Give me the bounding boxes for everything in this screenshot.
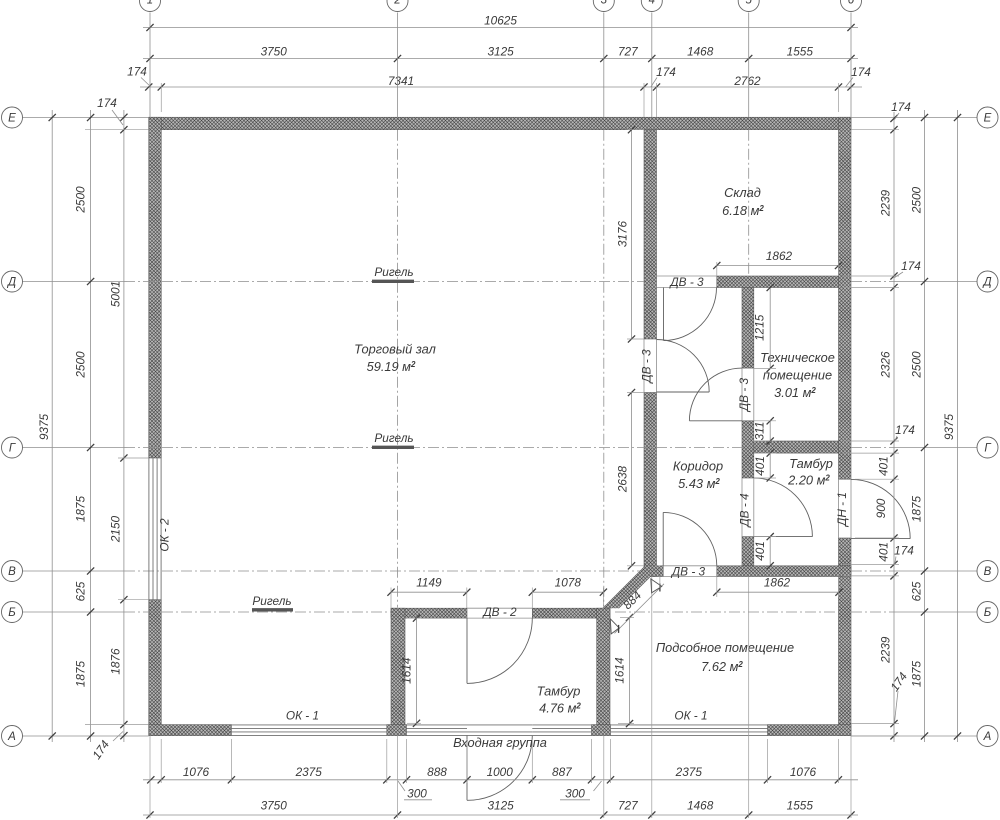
svg-text:В: В [984,566,992,578]
svg-text:1468: 1468 [687,44,714,58]
svg-text:401: 401 [877,456,891,476]
svg-text:ДН - 1: ДН - 1 [835,492,849,528]
svg-text:2500: 2500 [910,186,924,214]
svg-text:ДВ - 3: ДВ - 3 [670,565,706,579]
svg-text:1555: 1555 [787,44,814,58]
svg-text:ДВ - 2: ДВ - 2 [481,605,517,619]
svg-text:1: 1 [147,0,153,7]
svg-text:В: В [8,566,16,578]
svg-text:ОК - 1: ОК - 1 [674,709,707,723]
svg-text:174: 174 [851,65,871,79]
svg-text:3.01 м2: 3.01 м2 [774,385,816,400]
svg-text:900: 900 [874,498,888,518]
svg-text:3125: 3125 [487,799,514,813]
svg-text:ДВ - 3: ДВ - 3 [737,377,751,413]
svg-text:2375: 2375 [675,765,703,779]
svg-text:2762: 2762 [733,74,761,88]
svg-text:6: 6 [848,0,855,7]
svg-text:4: 4 [649,0,655,7]
svg-text:А: А [983,731,992,743]
svg-text:1076: 1076 [790,765,817,779]
svg-text:3750: 3750 [261,44,288,58]
svg-text:1555: 1555 [787,799,814,813]
svg-text:Торговый зал: Торговый зал [354,342,436,357]
svg-text:300: 300 [407,787,427,801]
svg-text:2239: 2239 [879,189,893,217]
svg-text:ДВ - 4: ДВ - 4 [738,493,752,529]
svg-text:10625: 10625 [484,13,517,27]
svg-text:1862: 1862 [764,576,791,590]
svg-text:2.20 м2: 2.20 м2 [787,473,830,488]
svg-text:3176: 3176 [616,220,630,247]
svg-text:174: 174 [656,65,676,79]
svg-text:2: 2 [393,0,401,7]
svg-text:Г: Г [984,443,991,455]
svg-text:Техническое: Техническое [760,350,835,365]
svg-text:Тамбур: Тамбур [789,456,833,471]
svg-text:1862: 1862 [766,249,793,263]
svg-text:Ригель: Ригель [252,594,291,608]
svg-text:ДВ - 3: ДВ - 3 [640,349,654,385]
svg-text:1078: 1078 [555,576,582,590]
svg-text:174: 174 [901,259,921,273]
svg-text:1875: 1875 [74,660,88,687]
svg-text:Е: Е [984,113,992,125]
svg-text:1076: 1076 [183,765,210,779]
svg-text:300: 300 [565,787,585,801]
svg-text:887: 887 [552,765,572,779]
svg-text:Тамбур: Тамбур [537,684,581,699]
svg-text:Б: Б [984,607,992,619]
svg-text:ОК - 1: ОК - 1 [286,709,319,723]
svg-text:1875: 1875 [910,660,924,687]
svg-text:2239: 2239 [879,636,893,664]
svg-text:174: 174 [891,100,911,114]
svg-text:Д: Д [981,277,991,289]
svg-text:2500: 2500 [74,186,88,214]
svg-text:625: 625 [910,581,924,601]
svg-text:1875: 1875 [74,495,88,522]
svg-text:5: 5 [745,0,752,7]
svg-text:1000: 1000 [487,765,514,779]
svg-text:174: 174 [127,65,147,79]
svg-text:2150: 2150 [109,515,123,543]
svg-text:1614: 1614 [613,657,627,684]
svg-text:1215: 1215 [753,314,767,341]
svg-text:401: 401 [753,456,767,476]
svg-text:174: 174 [894,544,914,558]
svg-text:3: 3 [601,0,608,7]
svg-text:401: 401 [877,542,891,562]
svg-text:174: 174 [97,96,117,110]
svg-text:1875: 1875 [910,495,924,522]
svg-text:2375: 2375 [295,765,323,779]
svg-text:3750: 3750 [261,799,288,813]
svg-text:Д: Д [6,277,16,289]
svg-text:помещение: помещение [763,368,832,383]
svg-text:7.62 м2: 7.62 м2 [701,659,743,674]
svg-text:ДВ - 3: ДВ - 3 [668,275,704,289]
svg-text:174: 174 [895,423,915,437]
svg-text:625: 625 [74,581,88,601]
svg-text:5.43 м2: 5.43 м2 [678,476,720,491]
svg-text:9375: 9375 [942,413,956,440]
svg-text:401: 401 [753,541,767,561]
svg-text:Б: Б [8,607,16,619]
svg-text:7341: 7341 [388,74,414,88]
svg-text:А: А [7,731,16,743]
svg-text:2500: 2500 [910,351,924,379]
svg-text:1614: 1614 [400,657,414,684]
svg-text:Ригель: Ригель [374,431,413,445]
svg-text:4.76 м2: 4.76 м2 [539,701,581,716]
svg-text:6.18 м2: 6.18 м2 [722,203,764,218]
svg-text:Коридор: Коридор [673,459,723,474]
svg-text:2500: 2500 [74,351,88,379]
svg-text:ОК - 2: ОК - 2 [158,518,172,552]
svg-text:2638: 2638 [616,465,630,493]
svg-text:Ригель: Ригель [374,265,413,279]
svg-text:Е: Е [8,113,16,125]
svg-text:59.19 м2: 59.19 м2 [367,359,416,374]
svg-text:Склад: Склад [724,185,761,200]
svg-text:3125: 3125 [487,44,514,58]
svg-text:2326: 2326 [879,351,893,379]
svg-text:Г: Г [9,443,16,455]
svg-text:888: 888 [427,765,447,779]
svg-text:1468: 1468 [687,799,714,813]
svg-text:1149: 1149 [416,576,442,590]
svg-text:9375: 9375 [37,413,51,440]
svg-text:727: 727 [618,44,638,58]
svg-text:Подсобное помещение: Подсобное помещение [656,640,794,655]
svg-text:1876: 1876 [109,648,123,675]
svg-text:727: 727 [618,799,638,813]
svg-text:311: 311 [753,422,767,441]
svg-text:5001: 5001 [109,281,123,307]
